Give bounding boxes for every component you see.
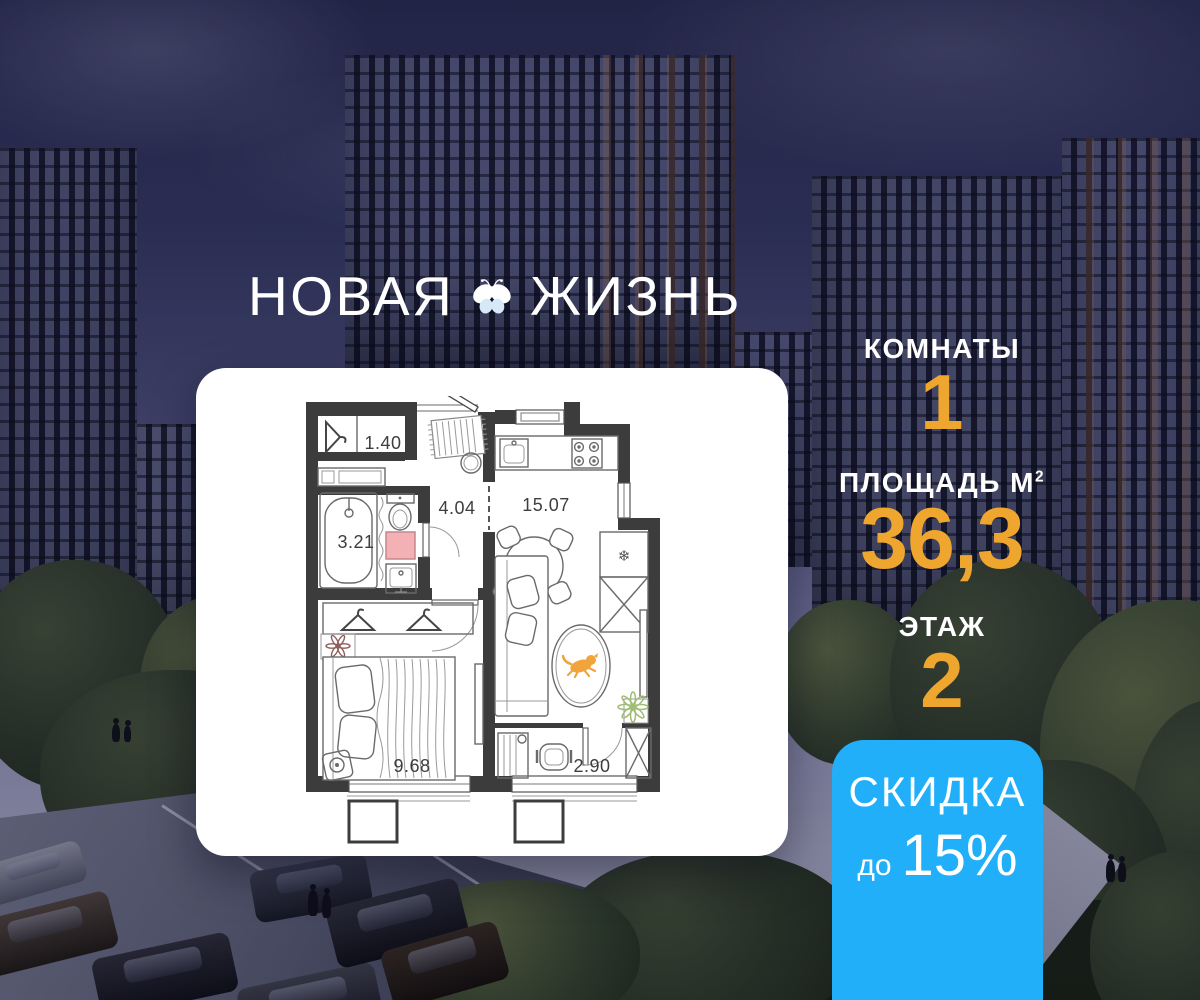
- brand-word-right: ЖИЗНЬ: [530, 269, 742, 324]
- tv-panel: [640, 610, 647, 697]
- floorplan-card: ❄: [196, 368, 788, 856]
- room-area-label: 1.40: [364, 433, 401, 453]
- sofa: [495, 556, 548, 716]
- room-area-label: 15.07: [522, 495, 570, 515]
- mirror: [475, 664, 483, 744]
- spec-floor: ЭТАЖ 2: [822, 611, 1062, 717]
- floor-value: 2: [822, 643, 1062, 717]
- room-area-label: 9.68: [393, 756, 430, 776]
- dog: [563, 653, 598, 677]
- discount-value: 15%: [902, 822, 1018, 889]
- plant: [618, 692, 648, 722]
- doormat: [427, 415, 489, 459]
- spec-area: ПЛОЩАДЬ М2 36,3: [822, 467, 1062, 581]
- hall-niche-cabinet: [318, 468, 385, 486]
- desk-chair: [537, 744, 571, 770]
- rooms-value: 1: [822, 365, 1062, 439]
- apartment-floorplan: ❄: [300, 396, 666, 852]
- discount-badge: СКИДКА до 15%: [832, 740, 1043, 1000]
- discount-title: СКИДКА: [832, 768, 1043, 816]
- room-area-label: 4.04: [438, 498, 475, 518]
- room-area-label: 2.90: [573, 756, 610, 776]
- hallway-fixtures: [432, 453, 489, 651]
- closet-fixtures: [326, 416, 357, 452]
- spec-rooms: КОМНАТЫ 1: [822, 333, 1062, 439]
- discount-prefix: до: [857, 849, 891, 883]
- entrance-door: [417, 396, 489, 459]
- area-value: 36,3: [822, 499, 1062, 581]
- area-label-sup: 2: [1035, 469, 1045, 486]
- snowflake-icon: ❄: [618, 548, 631, 565]
- butterfly-icon: [468, 258, 516, 334]
- brand-word-left: НОВАЯ: [248, 269, 454, 324]
- bedroom-fixtures: [321, 603, 483, 781]
- plant: [326, 635, 350, 658]
- promo-banner: НОВАЯ ЖИЗНЬ: [0, 0, 1200, 1000]
- washing-machine: [386, 532, 415, 559]
- brand-logo: НОВАЯ ЖИЗНЬ: [248, 252, 742, 340]
- room-area-label: 3.21: [337, 532, 374, 552]
